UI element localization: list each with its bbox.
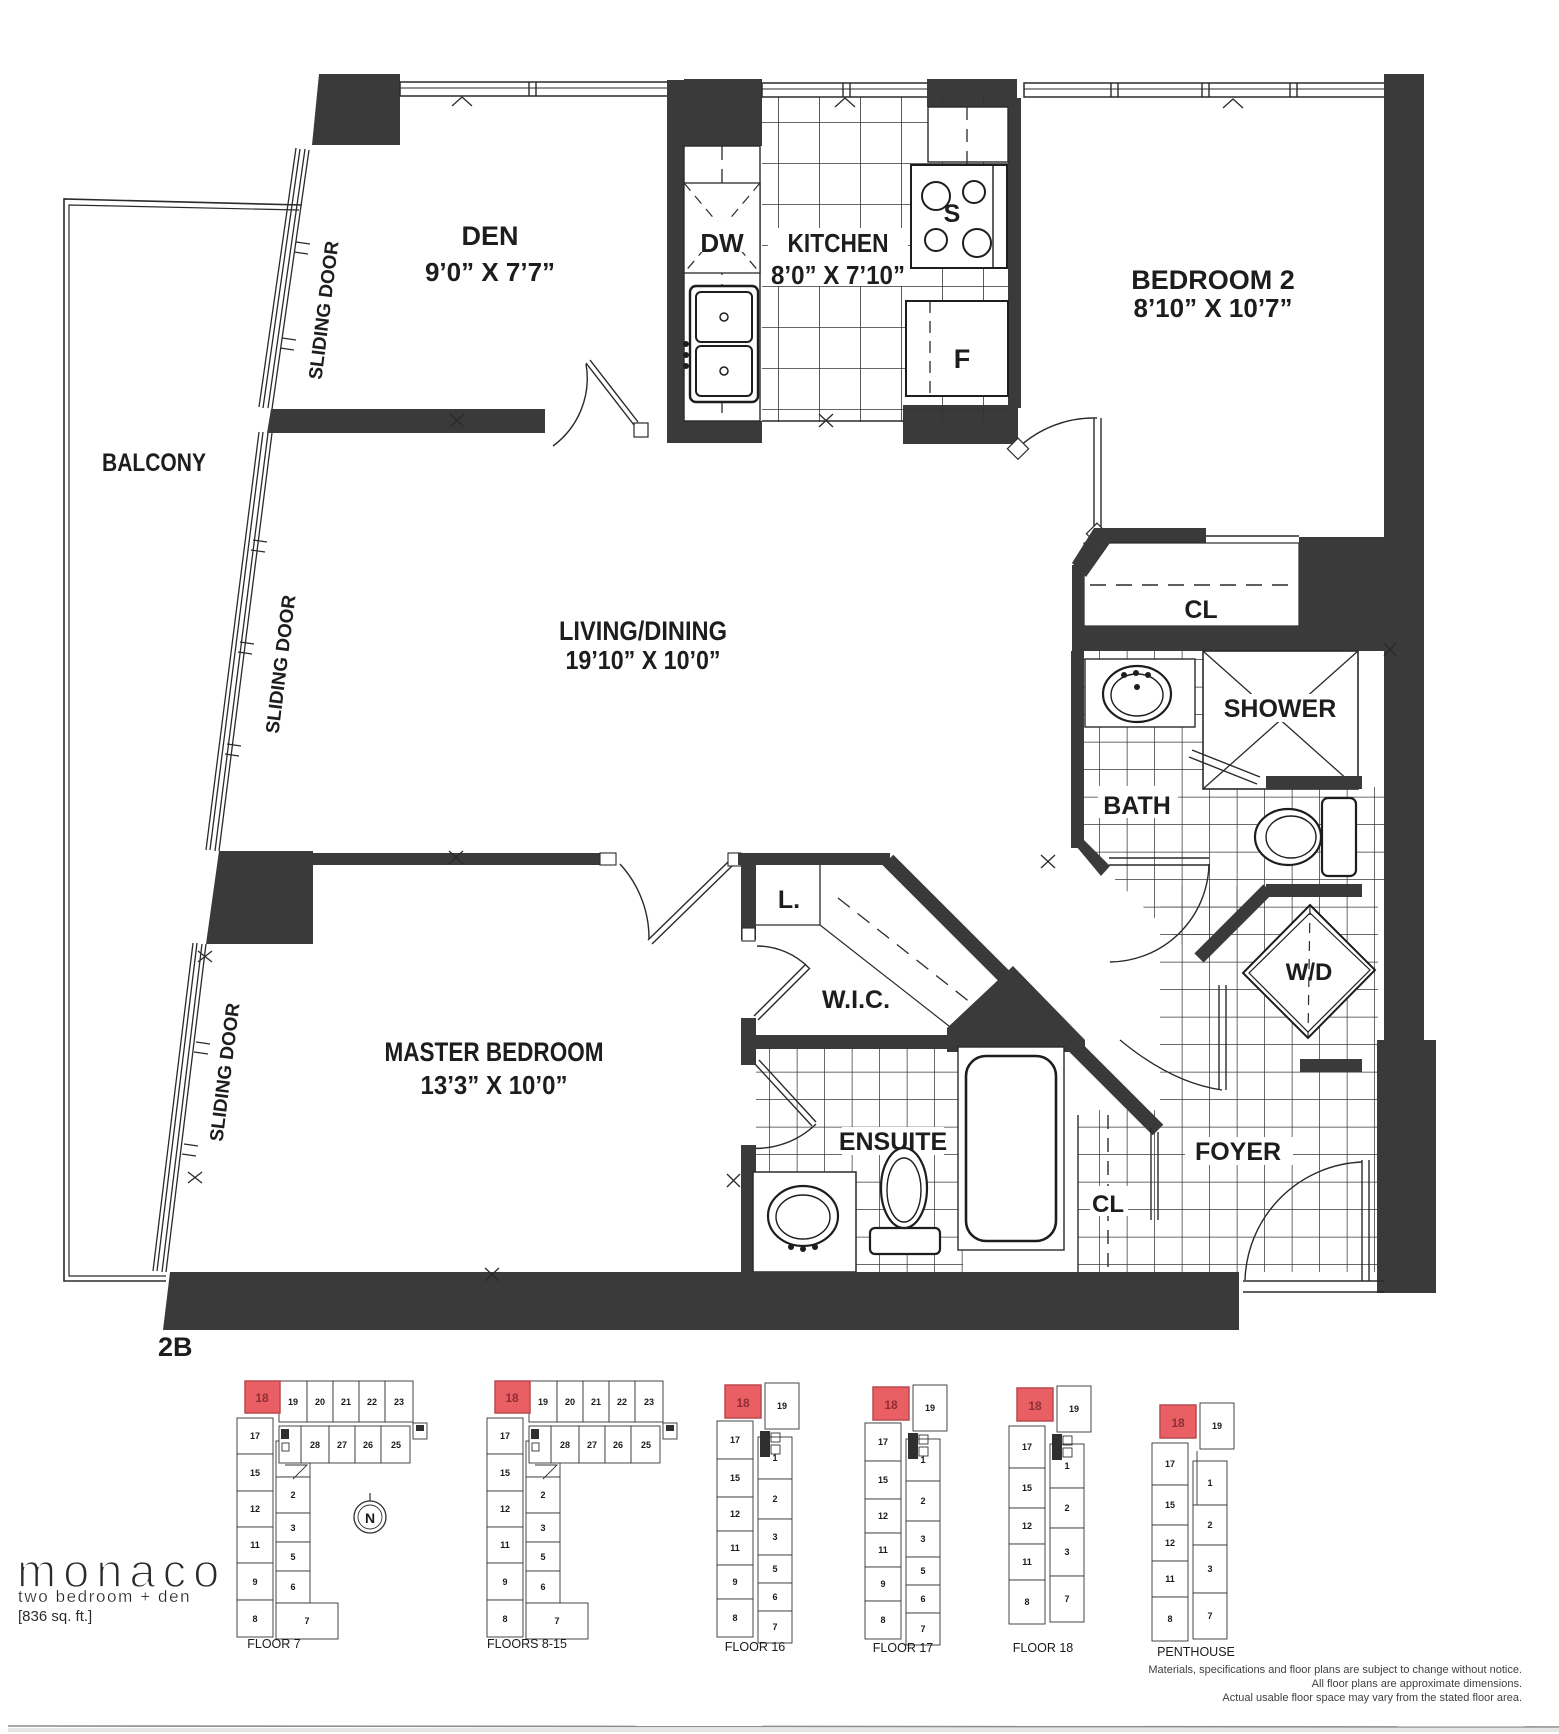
svg-text:2: 2 bbox=[1207, 1520, 1212, 1530]
svg-text:2: 2 bbox=[772, 1494, 777, 1504]
svg-text:9: 9 bbox=[732, 1577, 737, 1587]
svg-text:BATH: BATH bbox=[1103, 792, 1171, 820]
svg-text:11: 11 bbox=[730, 1543, 740, 1553]
svg-text:[836 sq. ft.]: [836 sq. ft.] bbox=[18, 1608, 92, 1625]
svg-text:26: 26 bbox=[363, 1440, 373, 1450]
svg-text:18: 18 bbox=[1171, 1416, 1185, 1430]
svg-text:28: 28 bbox=[560, 1440, 570, 1450]
svg-text:3: 3 bbox=[772, 1532, 777, 1542]
svg-text:BEDROOM 2: BEDROOM 2 bbox=[1131, 265, 1295, 295]
svg-text:7: 7 bbox=[772, 1622, 777, 1632]
svg-text:9’0” X 7’7”: 9’0” X 7’7” bbox=[425, 257, 555, 287]
svg-text:19: 19 bbox=[538, 1397, 548, 1407]
svg-text:15: 15 bbox=[878, 1475, 888, 1485]
svg-text:CL: CL bbox=[1092, 1191, 1124, 1218]
svg-text:11: 11 bbox=[878, 1545, 888, 1555]
svg-text:26: 26 bbox=[613, 1440, 623, 1450]
svg-text:FOYER: FOYER bbox=[1195, 1138, 1281, 1166]
svg-text:6: 6 bbox=[920, 1594, 925, 1604]
svg-text:15: 15 bbox=[730, 1473, 740, 1483]
svg-text:Actual usable floor space may: Actual usable floor space may vary from … bbox=[1222, 1692, 1522, 1704]
svg-text:3: 3 bbox=[540, 1523, 545, 1533]
svg-text:15: 15 bbox=[250, 1468, 260, 1478]
svg-text:1: 1 bbox=[1064, 1461, 1069, 1471]
svg-text:13’3” X 10’0”: 13’3” X 10’0” bbox=[421, 1070, 568, 1100]
svg-text:FLOOR 16: FLOOR 16 bbox=[725, 1640, 785, 1654]
svg-text:15: 15 bbox=[500, 1468, 510, 1478]
svg-text:BALCONY: BALCONY bbox=[102, 449, 206, 477]
svg-text:CL: CL bbox=[1184, 596, 1217, 624]
svg-text:1: 1 bbox=[772, 1453, 777, 1463]
svg-text:W.I.C.: W.I.C. bbox=[822, 986, 890, 1014]
svg-text:5: 5 bbox=[290, 1552, 295, 1562]
svg-text:5: 5 bbox=[920, 1566, 925, 1576]
svg-text:FLOOR 17: FLOOR 17 bbox=[873, 1641, 933, 1655]
svg-text:7: 7 bbox=[554, 1616, 559, 1626]
svg-text:18: 18 bbox=[255, 1391, 269, 1405]
svg-text:12: 12 bbox=[250, 1504, 260, 1514]
svg-text:LIVING/DINING: LIVING/DINING bbox=[559, 616, 727, 646]
svg-text:3: 3 bbox=[1207, 1564, 1212, 1574]
svg-text:19: 19 bbox=[1069, 1404, 1079, 1414]
svg-text:3: 3 bbox=[290, 1523, 295, 1533]
svg-text:17: 17 bbox=[250, 1431, 260, 1441]
svg-text:11: 11 bbox=[500, 1540, 510, 1550]
svg-text:2B: 2B bbox=[158, 1332, 193, 1362]
svg-text:20: 20 bbox=[565, 1397, 575, 1407]
svg-text:9: 9 bbox=[252, 1577, 257, 1587]
svg-text:11: 11 bbox=[250, 1540, 260, 1550]
svg-text:DW: DW bbox=[700, 228, 744, 258]
svg-text:18: 18 bbox=[1028, 1399, 1042, 1413]
svg-text:L.: L. bbox=[778, 886, 800, 914]
svg-text:22: 22 bbox=[617, 1397, 627, 1407]
svg-text:6: 6 bbox=[290, 1582, 295, 1592]
svg-text:All floor plans are approximat: All floor plans are approximate dimensio… bbox=[1312, 1678, 1522, 1690]
svg-text:17: 17 bbox=[1022, 1442, 1032, 1452]
svg-text:DEN: DEN bbox=[461, 221, 518, 251]
svg-text:FLOOR 18: FLOOR 18 bbox=[1013, 1641, 1073, 1655]
svg-text:8: 8 bbox=[502, 1614, 507, 1624]
svg-text:8’0” X 7’10”: 8’0” X 7’10” bbox=[771, 260, 905, 290]
svg-text:6: 6 bbox=[772, 1592, 777, 1602]
svg-text:18: 18 bbox=[505, 1391, 519, 1405]
svg-text:25: 25 bbox=[391, 1440, 401, 1450]
svg-text:23: 23 bbox=[394, 1397, 404, 1407]
svg-text:12: 12 bbox=[500, 1504, 510, 1514]
svg-text:8’10” X 10’7”: 8’10” X 10’7” bbox=[1134, 293, 1293, 323]
svg-text:1: 1 bbox=[920, 1455, 925, 1465]
svg-text:2: 2 bbox=[540, 1490, 545, 1500]
svg-text:2: 2 bbox=[920, 1496, 925, 1506]
svg-text:N: N bbox=[365, 1510, 375, 1526]
svg-text:28: 28 bbox=[310, 1440, 320, 1450]
svg-text:12: 12 bbox=[1022, 1521, 1032, 1531]
svg-text:FLOORS 8-15: FLOORS 8-15 bbox=[487, 1637, 567, 1651]
svg-text:17: 17 bbox=[730, 1435, 740, 1445]
svg-text:6: 6 bbox=[540, 1582, 545, 1592]
svg-text:5: 5 bbox=[540, 1552, 545, 1562]
svg-text:19: 19 bbox=[925, 1403, 935, 1413]
svg-text:1: 1 bbox=[1207, 1478, 1212, 1488]
svg-text:27: 27 bbox=[587, 1440, 597, 1450]
svg-text:3: 3 bbox=[920, 1534, 925, 1544]
svg-text:9: 9 bbox=[880, 1579, 885, 1589]
svg-text:12: 12 bbox=[730, 1509, 740, 1519]
svg-text:17: 17 bbox=[500, 1431, 510, 1441]
svg-text:12: 12 bbox=[1165, 1538, 1175, 1548]
svg-text:20: 20 bbox=[315, 1397, 325, 1407]
svg-text:two bedroom + den: two bedroom + den bbox=[18, 1587, 191, 1606]
svg-text:8: 8 bbox=[880, 1615, 885, 1625]
svg-text:7: 7 bbox=[920, 1624, 925, 1634]
svg-text:3: 3 bbox=[1064, 1547, 1069, 1557]
svg-text:27: 27 bbox=[337, 1440, 347, 1450]
svg-text:15: 15 bbox=[1165, 1500, 1175, 1510]
svg-text:19: 19 bbox=[777, 1401, 787, 1411]
svg-text:19: 19 bbox=[1212, 1421, 1222, 1431]
svg-text:SHOWER: SHOWER bbox=[1224, 695, 1337, 723]
svg-text:8: 8 bbox=[732, 1613, 737, 1623]
svg-text:25: 25 bbox=[641, 1440, 651, 1450]
svg-text:PENTHOUSE: PENTHOUSE bbox=[1157, 1645, 1235, 1659]
svg-text:8: 8 bbox=[1167, 1614, 1172, 1624]
svg-text:2: 2 bbox=[290, 1490, 295, 1500]
svg-text:19: 19 bbox=[288, 1397, 298, 1407]
svg-text:KITCHEN: KITCHEN bbox=[788, 228, 889, 258]
svg-text:23: 23 bbox=[644, 1397, 654, 1407]
svg-text:7: 7 bbox=[1064, 1594, 1069, 1604]
svg-text:15: 15 bbox=[1022, 1483, 1032, 1493]
svg-text:8: 8 bbox=[1024, 1597, 1029, 1607]
svg-text:11: 11 bbox=[1165, 1574, 1175, 1584]
svg-text:17: 17 bbox=[878, 1437, 888, 1447]
svg-text:S: S bbox=[944, 200, 961, 228]
svg-text:F: F bbox=[954, 344, 971, 374]
svg-text:21: 21 bbox=[341, 1397, 351, 1407]
svg-text:22: 22 bbox=[367, 1397, 377, 1407]
svg-text:5: 5 bbox=[772, 1564, 777, 1574]
svg-text:FLOOR 7: FLOOR 7 bbox=[247, 1637, 301, 1651]
svg-text:2: 2 bbox=[1064, 1503, 1069, 1513]
svg-text:9: 9 bbox=[502, 1577, 507, 1587]
svg-text:7: 7 bbox=[304, 1616, 309, 1626]
svg-text:19’10” X 10’0”: 19’10” X 10’0” bbox=[566, 645, 721, 675]
svg-text:18: 18 bbox=[884, 1398, 898, 1412]
svg-text:21: 21 bbox=[591, 1397, 601, 1407]
svg-text:8: 8 bbox=[252, 1614, 257, 1624]
svg-text:W/D: W/D bbox=[1286, 959, 1333, 986]
svg-text:11: 11 bbox=[1022, 1557, 1032, 1567]
svg-text:17: 17 bbox=[1165, 1459, 1175, 1469]
svg-text:12: 12 bbox=[878, 1511, 888, 1521]
svg-text:Materials, specifications and: Materials, specifications and floor plan… bbox=[1148, 1664, 1522, 1676]
svg-text:MASTER BEDROOM: MASTER BEDROOM bbox=[385, 1037, 604, 1067]
svg-text:18: 18 bbox=[736, 1396, 750, 1410]
svg-text:7: 7 bbox=[1207, 1611, 1212, 1621]
